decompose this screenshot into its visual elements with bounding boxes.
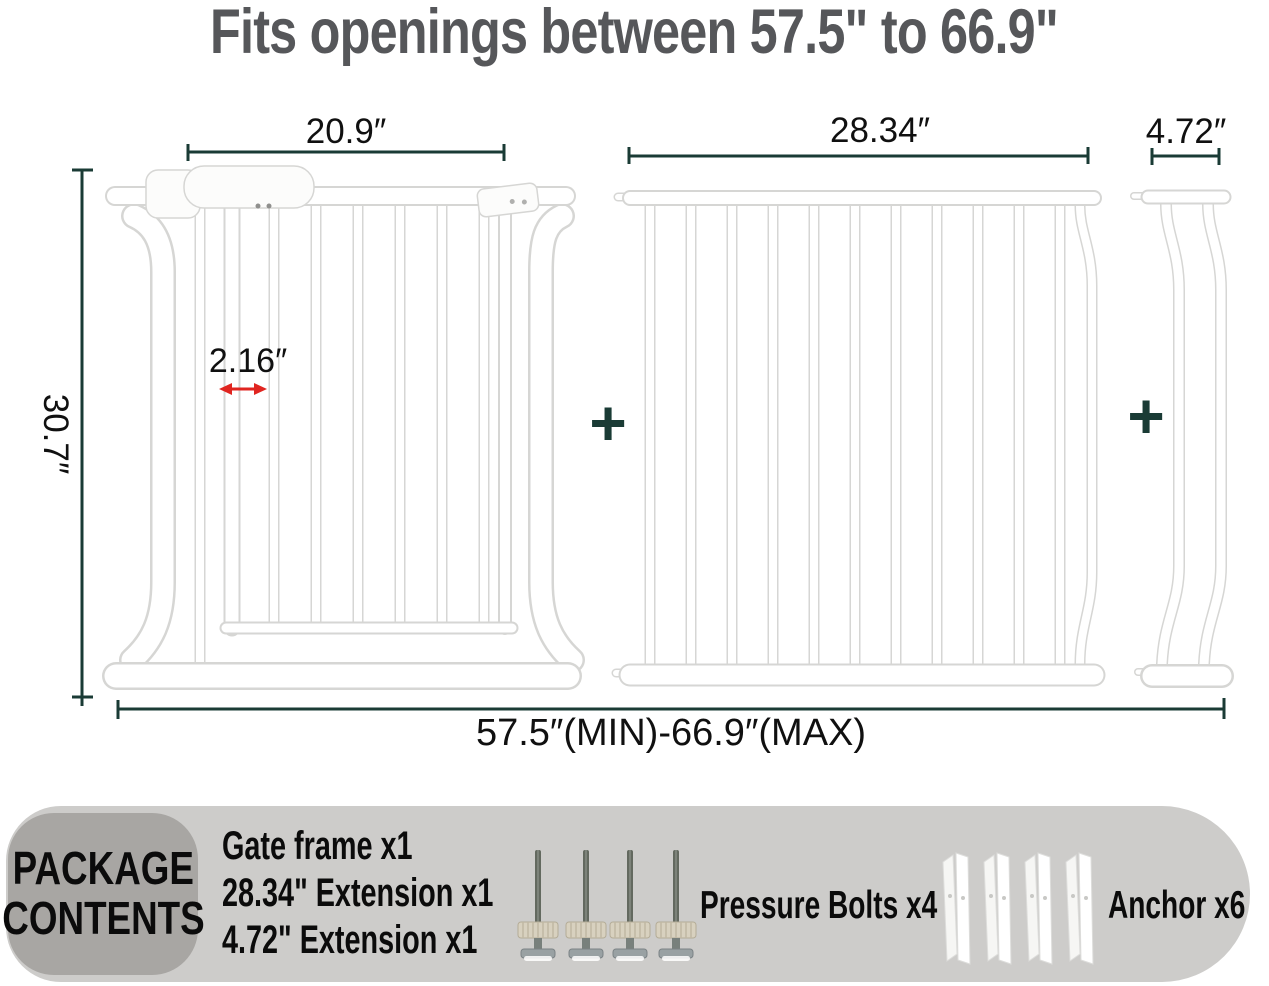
height-dimension: 30.7″ [36, 170, 93, 706]
package-item: Gate frame x1 [222, 823, 493, 870]
extension-bars [650, 206, 1060, 666]
anchor [943, 853, 970, 964]
pressure-bolt [610, 850, 650, 961]
gate-left-post [132, 216, 163, 660]
range-label: 57.5″(MIN)-66.9″(MAX) [476, 712, 866, 754]
gate-latch-handle [184, 166, 314, 209]
pressure-bolts-icon [508, 850, 708, 964]
package-item: 4.72" Extension x1 [222, 917, 493, 964]
height-label: 30.7″ [36, 394, 75, 475]
package-contents-panel: PACKAGE CONTENTS Gate frame x1 28.34" Ex… [6, 806, 1250, 982]
gate-width-label: 20.9″ [306, 112, 387, 151]
extension-panel-graphic [616, 197, 1094, 675]
pressure-bolt [656, 850, 696, 961]
extension-bottom-rail [616, 673, 1094, 675]
gate-frame-graphic [115, 166, 572, 676]
badge-line: CONTENTS [2, 894, 204, 944]
small-extension-bottom-rail [1138, 672, 1222, 676]
small-extension-width-label: 4.72″ [1146, 112, 1227, 151]
plus-icon: + [1127, 380, 1164, 452]
product-infographic: Fits openings between 57.5" to 66.9" 20.… [0, 0, 1269, 986]
extension-end-bar [1080, 206, 1092, 664]
pressure-bolt [518, 850, 558, 961]
dimension-diagram: 20.9″ 28.34″ 4.72″ 30.7″ [0, 0, 1269, 790]
range-dimension: 57.5″(MIN)-66.9″(MAX) [118, 698, 1224, 754]
package-item: 28.34" Extension x1 [222, 870, 493, 917]
small-extension-width-dimension: 4.72″ [1146, 112, 1227, 165]
gate-width-dimension: 20.9″ [188, 112, 504, 161]
pressure-bolts-label: Pressure Bolts x4 [700, 884, 937, 928]
anchor [1066, 853, 1093, 964]
gate-right-post [541, 216, 572, 660]
anchor [1025, 853, 1052, 964]
badge-line: PACKAGE [12, 844, 193, 894]
extension-top-rail [618, 197, 1094, 198]
anchor-icon [931, 846, 1106, 974]
plus-icon: + [589, 387, 626, 459]
small-extension-bars [1162, 204, 1221, 664]
anchor [984, 853, 1011, 964]
bar-gap-label: 2.16″ [209, 342, 287, 380]
small-extension-top-rail [1134, 196, 1224, 197]
gate-door-bars [274, 206, 484, 621]
extension-width-label: 28.34″ [830, 111, 930, 150]
package-contents-badge: PACKAGE CONTENTS [8, 813, 198, 975]
anchor-label: Anchor x6 [1108, 884, 1245, 928]
pressure-bolt [566, 850, 606, 961]
extension-width-dimension: 28.34″ [629, 111, 1088, 164]
